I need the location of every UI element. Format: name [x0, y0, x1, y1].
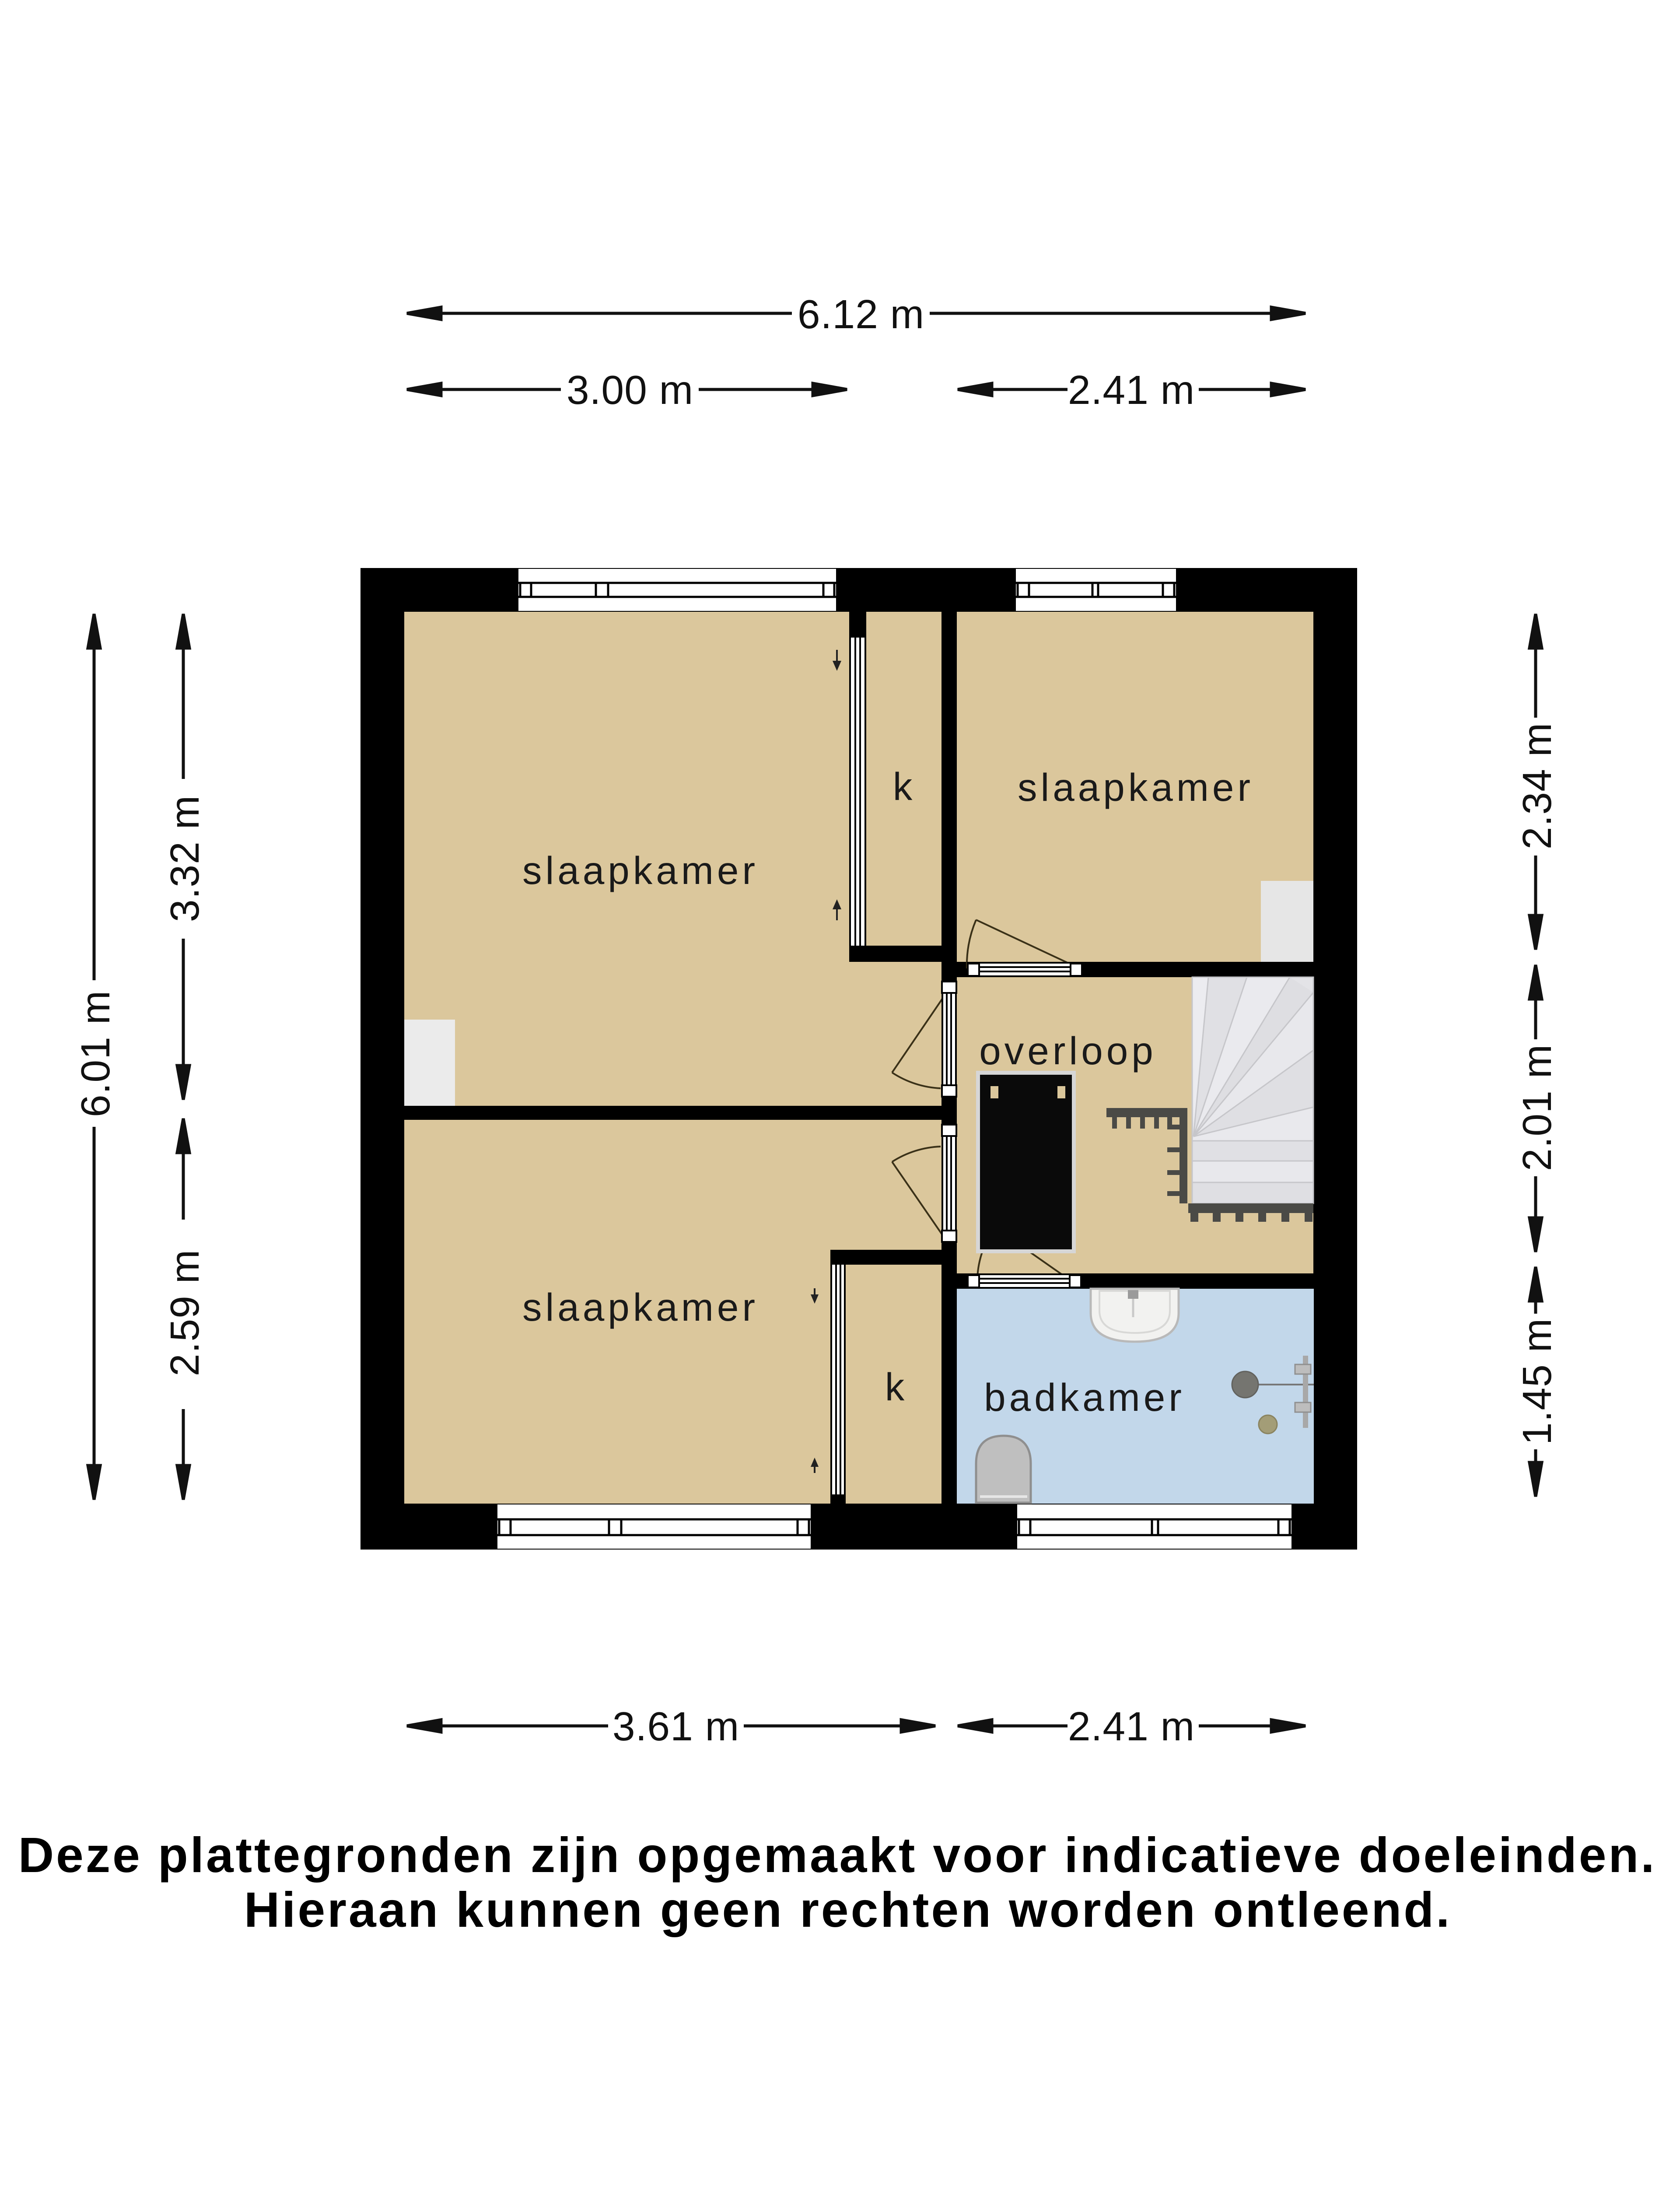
- svg-text:3.32 m: 3.32 m: [162, 795, 207, 922]
- svg-text:2.59 m: 2.59 m: [162, 1249, 207, 1376]
- svg-text:k: k: [893, 764, 916, 808]
- svg-text:slaapkamer: slaapkamer: [1018, 765, 1254, 809]
- svg-text:badkamer: badkamer: [984, 1375, 1185, 1419]
- svg-text:2.41 m: 2.41 m: [1068, 1704, 1195, 1749]
- svg-text:overloop: overloop: [979, 1029, 1156, 1073]
- svg-text:6.12 m: 6.12 m: [798, 291, 924, 337]
- svg-text:slaapkamer: slaapkamer: [522, 849, 759, 892]
- svg-text:1.45 m: 1.45 m: [1514, 1318, 1560, 1445]
- svg-text:Deze plattegronden zijn opgema: Deze plattegronden zijn opgemaakt voor i…: [18, 1827, 1657, 1883]
- svg-text:k: k: [885, 1365, 908, 1409]
- svg-text:2.41 m: 2.41 m: [1068, 367, 1195, 413]
- svg-text:Hieraan kunnen geen rechten wo: Hieraan kunnen geen rechten worden ontle…: [244, 1882, 1452, 1937]
- svg-text:3.00 m: 3.00 m: [567, 367, 693, 413]
- svg-text:3.61 m: 3.61 m: [612, 1704, 739, 1749]
- svg-text:slaapkamer: slaapkamer: [522, 1285, 759, 1329]
- svg-text:6.01 m: 6.01 m: [73, 990, 118, 1117]
- svg-text:2.01 m: 2.01 m: [1514, 1044, 1560, 1171]
- svg-text:2.34 m: 2.34 m: [1514, 722, 1560, 849]
